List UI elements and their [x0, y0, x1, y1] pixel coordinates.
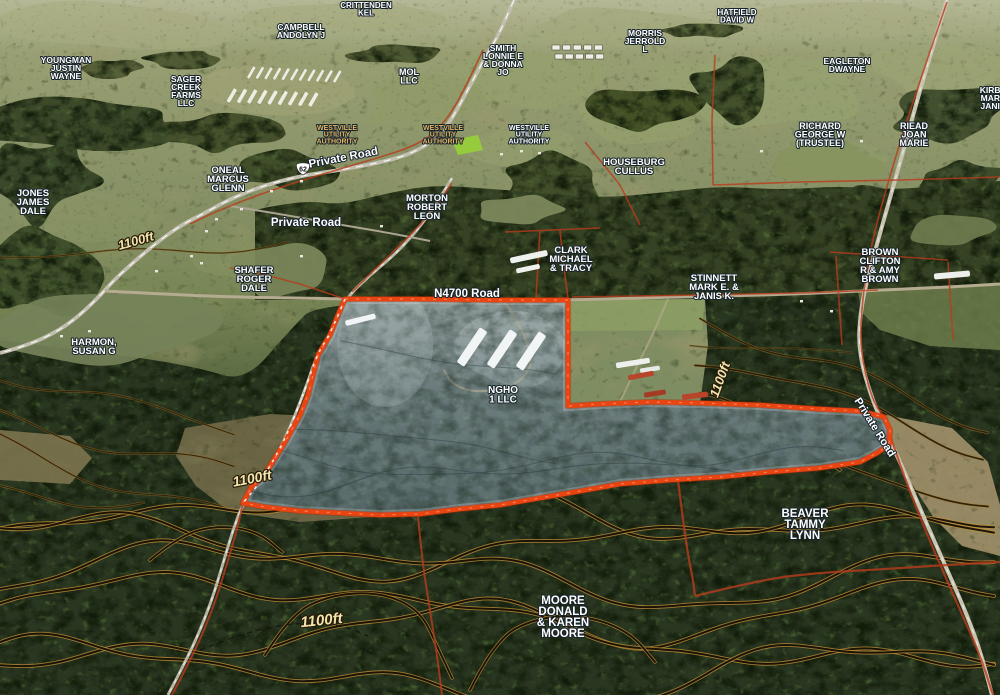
- svg-text:HATFIELDDAVID W: HATFIELDDAVID W: [718, 8, 757, 25]
- svg-text:ONEALMARCUSGLENN: ONEALMARCUSGLENN: [207, 165, 249, 194]
- svg-text:CLARKMICHAEL& TRACY: CLARKMICHAEL& TRACY: [549, 245, 592, 274]
- svg-text:MOOREDONALD& KARENMOORE: MOOREDONALD& KARENMOORE: [537, 595, 589, 640]
- svg-text:RICHARDGEORGE W(TRUSTEE): RICHARDGEORGE W(TRUSTEE): [795, 121, 846, 148]
- svg-text:62: 62: [299, 167, 307, 174]
- svg-text:CAMPBELLANDOLYN J: CAMPBELLANDOLYN J: [277, 22, 326, 40]
- svg-text:BROWNCLIFTONR & AMYBROWN: BROWNCLIFTONR & AMYBROWN: [860, 247, 901, 285]
- svg-text:NGHO1 LLC: NGHO1 LLC: [488, 385, 518, 406]
- svg-text:KIRBYMARYJANIS: KIRBYMARYJANIS: [980, 85, 1000, 111]
- svg-text:HARMON,SUSAN G: HARMON,SUSAN G: [71, 337, 116, 357]
- svg-text:EAGLETONDWAYNE: EAGLETONDWAYNE: [823, 56, 870, 74]
- svg-text:JONESJAMESDALE: JONESJAMESDALE: [17, 188, 50, 217]
- svg-text:RIEADJOANMARIE: RIEADJOANMARIE: [900, 121, 929, 148]
- svg-text:Private Road: Private Road: [271, 217, 341, 229]
- svg-text:STINNETTMARK E. &JANIS K.: STINNETTMARK E. &JANIS K.: [689, 273, 739, 302]
- svg-text:N4700 Road: N4700 Road: [434, 288, 500, 300]
- svg-text:MOLLLC: MOLLLC: [399, 67, 419, 86]
